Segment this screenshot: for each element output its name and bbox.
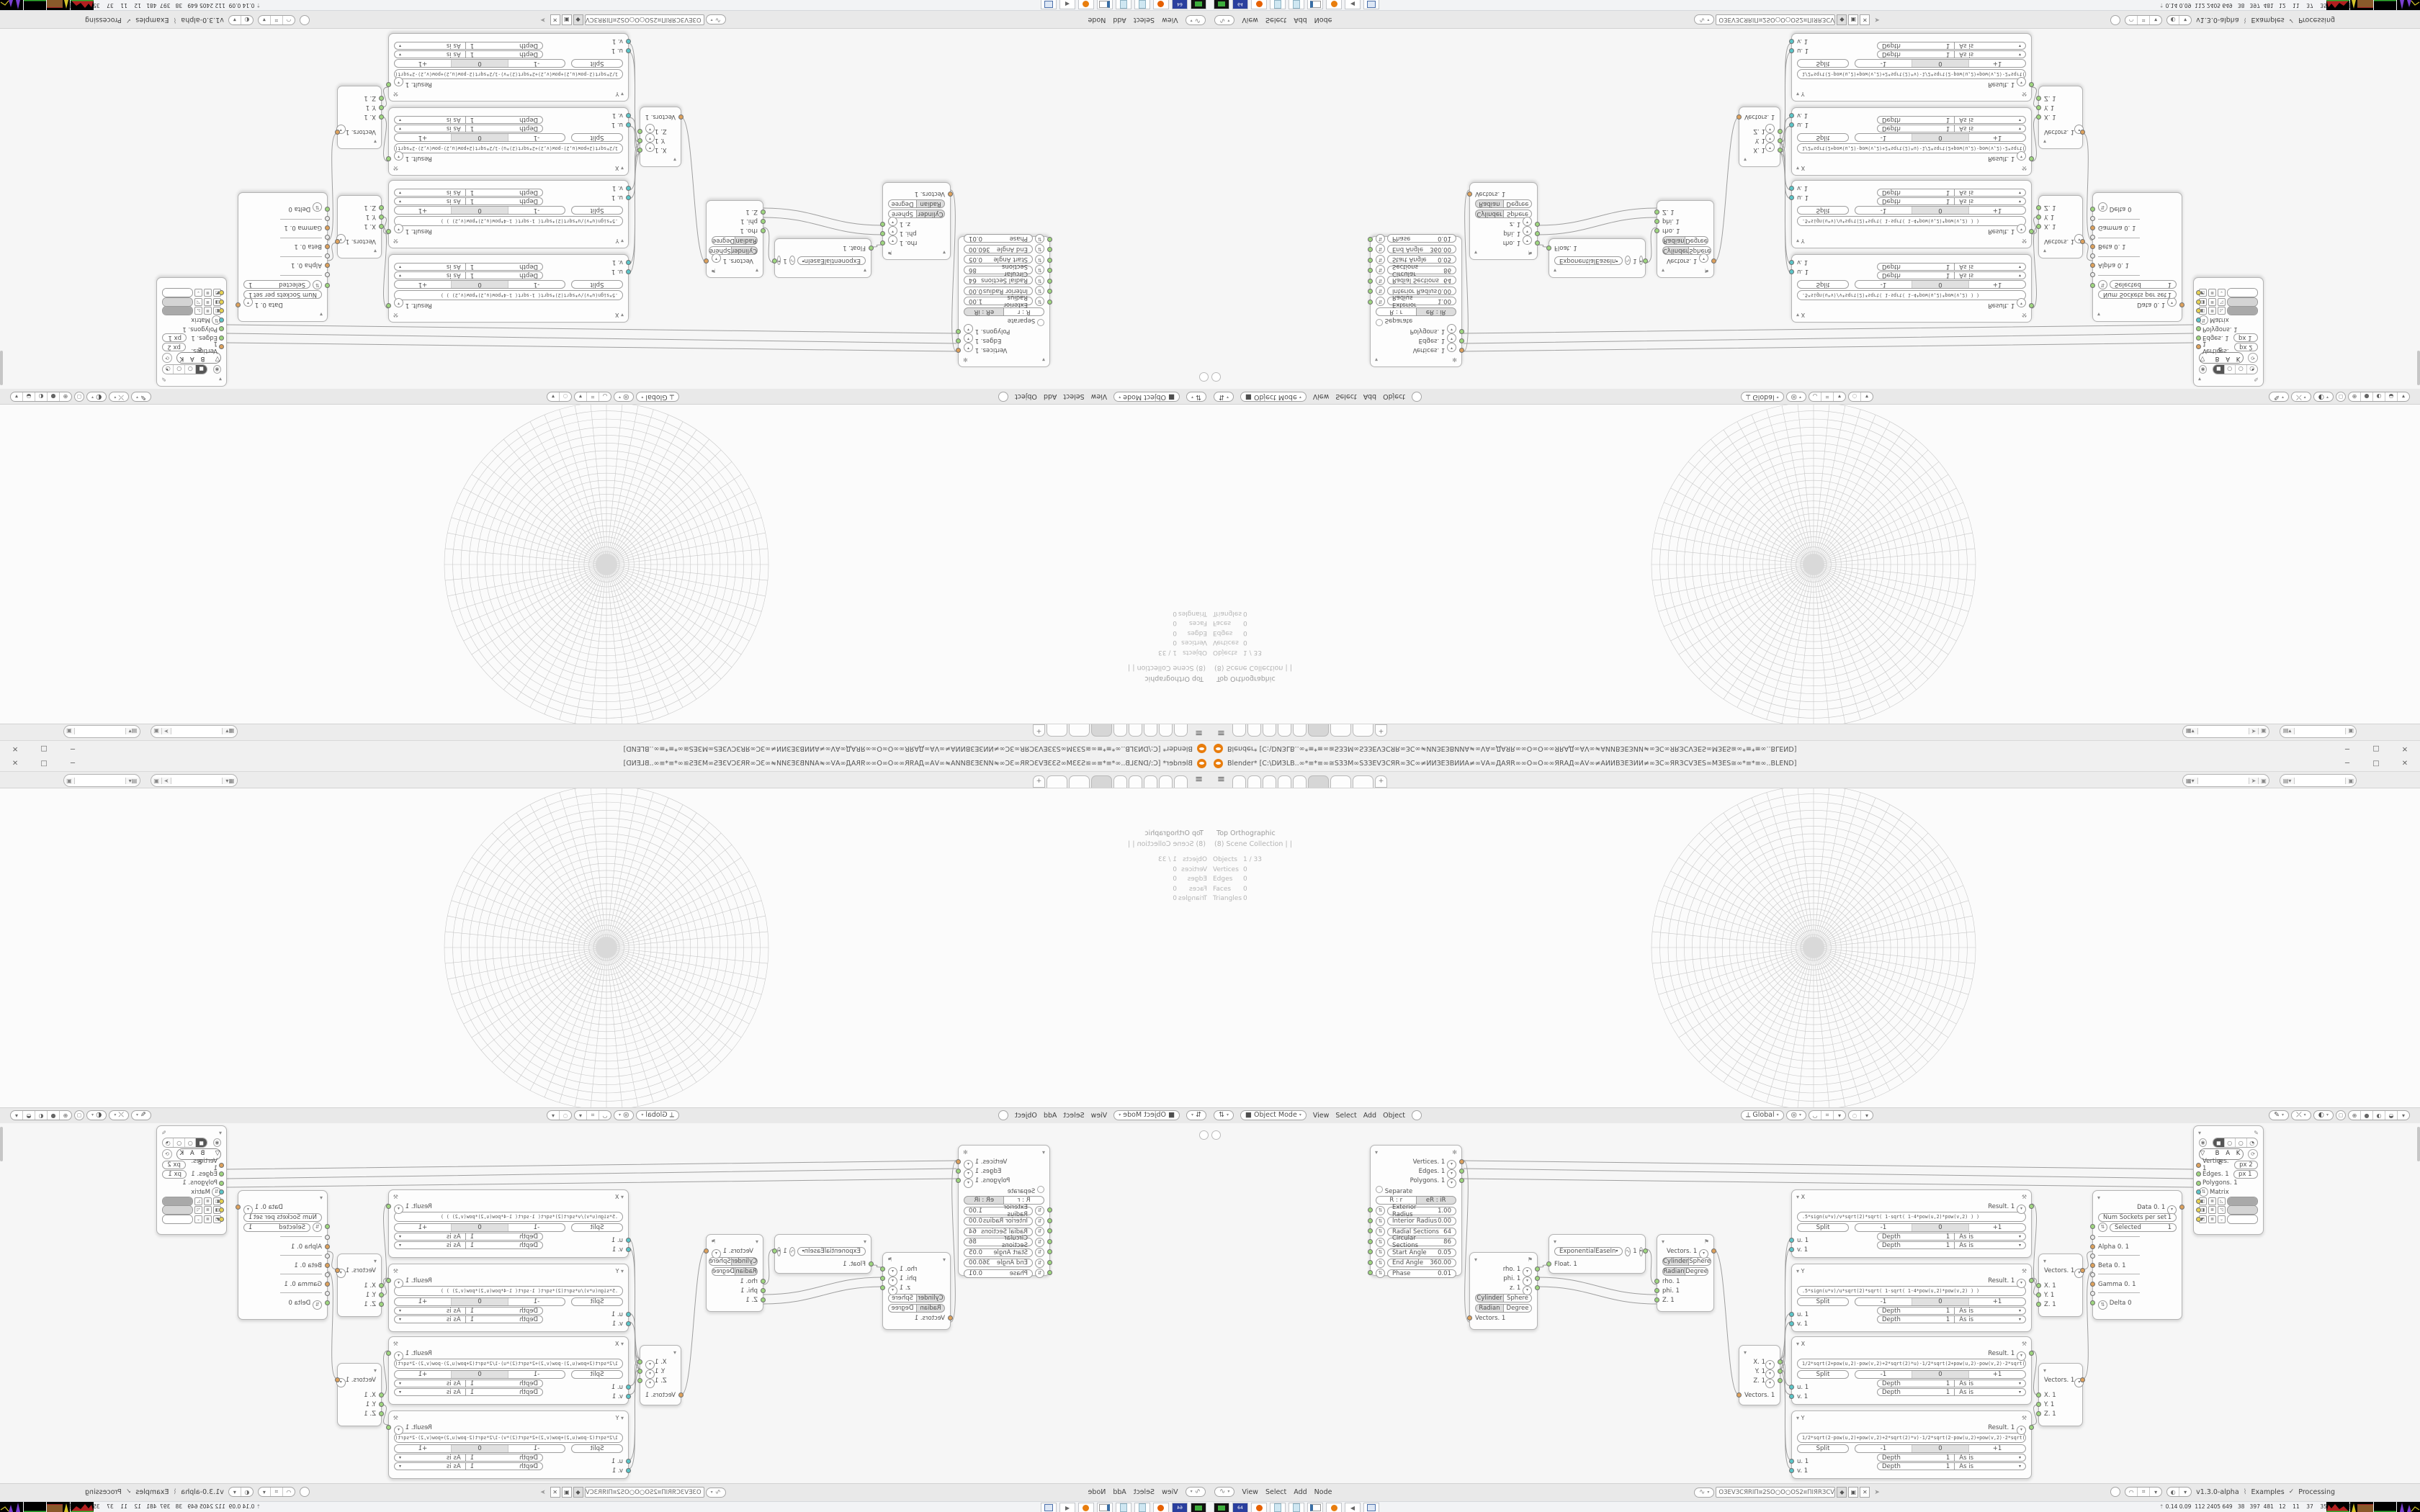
scene-selector[interactable]: ▦▾ ➤ ▣ — [2182, 725, 2269, 738]
add-workspace-button[interactable]: + — [1033, 775, 1045, 788]
menu-view[interactable]: View — [1162, 1488, 1178, 1496]
socket-vectors-out[interactable] — [335, 1268, 340, 1273]
socket-z-out[interactable] — [1778, 1378, 1783, 1383]
node-expression-x2[interactable]: ▾ X⚒ Result. 1 ▾ 1/2*sqrt(2+pow(u,2)-pow… — [1791, 1336, 2032, 1405]
node-polar-grid[interactable]: ▾✻ Vertices. 1 ▾ Edges. 1 ▾ Polygons. 1 … — [958, 236, 1050, 367]
socket-data-out[interactable] — [236, 302, 241, 307]
vertex-px-field[interactable]: px 2 — [162, 343, 186, 351]
param-field[interactable]: End Angle360.00 — [1387, 1259, 1456, 1267]
processing-toggle[interactable]: Processing — [2298, 17, 2335, 24]
tree-browse-button[interactable]: ∿▾ — [706, 1488, 726, 1498]
socket-z-out[interactable] — [880, 222, 885, 227]
socket-v-in[interactable] — [1789, 186, 1794, 191]
add-workspace-button[interactable]: + — [1375, 775, 1387, 788]
shading-mode-switch[interactable]: ⊕●◐◒▾ — [10, 1110, 72, 1120]
depth-row[interactable]: Depth1As is▾ — [394, 1388, 543, 1396]
param-field[interactable]: Interior Radius0.00 — [1387, 287, 1456, 295]
socket-vectors-out[interactable] — [2080, 239, 2085, 244]
menu-view[interactable]: View — [1091, 393, 1108, 401]
socket-y-out[interactable] — [1778, 1369, 1783, 1374]
overlay-toggle[interactable]: ▢ — [2336, 392, 2346, 402]
socket-data-out[interactable] — [2179, 302, 2184, 307]
list-icon[interactable]: ≣ — [204, 1206, 212, 1214]
depth-row[interactable]: Depth1As is▾ — [394, 189, 543, 197]
socket-vectors-in[interactable] — [678, 114, 684, 120]
socket-result-out[interactable] — [386, 229, 391, 234]
examples-menu[interactable]: Examples — [135, 1488, 169, 1496]
display-mode-switch[interactable]: ◼○○◔ — [162, 364, 207, 374]
node-vector-to-cylindrical[interactable]: ▾⚑ rho. 1 ▾ phi. 1 ▾ z. 1 ▾ CylinderSphe… — [1469, 1252, 1538, 1330]
window-app-icon[interactable] — [1041, 1503, 1057, 1512]
socket-float-in[interactable] — [1546, 1261, 1551, 1266]
vertex-color-swatch[interactable] — [2227, 307, 2258, 316]
window-app-icon[interactable] — [1363, 0, 1379, 9]
camera-icon[interactable]: ◉ — [2199, 365, 2207, 374]
depth-row[interactable]: Depth1As is▾ — [394, 1233, 543, 1241]
snap-circle-button[interactable] — [300, 1487, 310, 1497]
socket-z-in[interactable] — [379, 96, 384, 101]
offset-switch[interactable]: -10+1 — [1855, 1297, 2026, 1306]
node-expression-y1[interactable]: ▾ Y⚒ Result. 1 ▾ .5*sign(u*v)/u*sqrt(2)*… — [388, 1264, 629, 1332]
socket-vectors-out[interactable] — [2080, 1377, 2085, 1382]
scrollbar-thumb[interactable] — [0, 351, 3, 385]
notepad-icon[interactable] — [1116, 1503, 1131, 1512]
socket-gamma-in[interactable] — [325, 1282, 330, 1287]
socket-u-in[interactable] — [626, 122, 631, 127]
workspace-tab[interactable] — [1293, 775, 1307, 788]
socket-phi-out[interactable] — [1535, 1276, 1540, 1281]
coord-mode-toggle[interactable]: CylinderSphere — [1475, 210, 1532, 218]
overlap-toggle[interactable]: ◐▾ — [228, 15, 254, 25]
gizmo-dropdown[interactable]: ◐▾ — [86, 392, 107, 402]
node-data[interactable]: ▾ Data 0. 1 ▾ Num Sockets per set1 ⇅Sele… — [238, 192, 328, 322]
socket-z-in[interactable] — [1654, 210, 1659, 215]
minimize-button[interactable]: ─ — [2342, 744, 2352, 752]
list-icon[interactable]: ≣ — [204, 289, 212, 297]
proportional-edit-toggle[interactable]: ◌▾ — [547, 1110, 572, 1120]
node-tree-name-field[interactable]: ОЗЕVЗСЯRІП¤2SО○О○ОS2¤ПІЯRЗСVЗЕО — [1716, 1487, 1835, 1498]
expression-field[interactable]: 1/2*sqrt(2+pow(u,2)-pow(v,2)+2*sqrt(2)*u… — [1797, 143, 2026, 153]
blender-app-icon[interactable] — [1078, 0, 1094, 9]
split-button[interactable]: Split — [571, 1370, 623, 1379]
param-field[interactable]: Start Angle0.05 — [964, 256, 1033, 264]
socket-polygons-out[interactable] — [956, 329, 961, 334]
socket-beta-in[interactable] — [2090, 245, 2095, 250]
param-field[interactable]: Exterior Radius1.00 — [1387, 1207, 1456, 1215]
gizmo-dropdown[interactable]: ◐▾ — [2313, 392, 2334, 402]
editor-type-button[interactable]: ∿▾ — [1186, 15, 1206, 25]
speaker-icon[interactable]: ◀ — [1059, 1503, 1075, 1512]
shading-mode-switch[interactable]: ⊕●◐◒▾ — [10, 392, 72, 402]
socket-rho-in[interactable] — [1654, 1279, 1659, 1284]
offset-switch[interactable]: -10+1 — [1855, 207, 2026, 215]
socket-alpha-in[interactable] — [2090, 264, 2095, 269]
socket-z-in[interactable] — [2036, 96, 2041, 101]
viewlayer-selector[interactable]: ▤▾ ▣ — [63, 725, 140, 738]
scrollbar-thumb[interactable] — [2417, 1127, 2420, 1161]
vertex-color-swatch[interactable] — [162, 1197, 193, 1206]
pin-icon[interactable]: ➤ — [1874, 17, 1880, 24]
socket-edges-out[interactable] — [1459, 1169, 1464, 1174]
socket-polygons-in[interactable] — [219, 327, 224, 332]
copy-icon[interactable]: ▣ — [2345, 729, 2356, 735]
node-bake-output[interactable]: ▾✎ ◉ ◼○○◔ ▽ B A K E⟳ Vertices. 1px 2 Edg… — [156, 1125, 227, 1235]
menu-select[interactable]: Select — [1265, 1488, 1286, 1496]
menu-view[interactable]: View — [1313, 1112, 1330, 1120]
workspace-tab[interactable] — [1330, 775, 1351, 788]
angle-mode-toggle[interactable]: RadianDegree — [1662, 236, 1708, 245]
search-button[interactable] — [998, 392, 1008, 402]
socket-rho-out[interactable] — [1535, 1266, 1540, 1272]
coord-mode-toggle[interactable]: CylinderSphere — [1475, 1294, 1532, 1302]
list-icon[interactable]: ≣ — [2208, 298, 2216, 306]
editor-app-icon[interactable] — [1307, 1503, 1323, 1512]
node-split-xyz[interactable]: ▾ X. 1▾ Y. 1▾ Z. 1▾ Vectors. 1 — [1739, 1345, 1780, 1405]
socket-vertices-in[interactable] — [219, 1163, 224, 1168]
socket-z-in[interactable] — [761, 1297, 766, 1302]
expression-field[interactable]: 1/2*sqrt(2-pow(u,2)+pow(v,2)+2*sqrt(2)*v… — [394, 1433, 623, 1443]
socket-polygons-out[interactable] — [1459, 329, 1464, 334]
save64-app-icon[interactable]: 64 — [1172, 0, 1188, 9]
offset-switch[interactable]: -10+1 — [394, 1297, 565, 1306]
sorcar-node-editor[interactable]: ▾✻ Vertices. 1 ▾ Edges. 1 ▾ Polygons. 1 … — [0, 11, 1210, 389]
depth-row[interactable]: Depth1As is▾ — [394, 42, 543, 50]
socket-x-in[interactable] — [2036, 224, 2041, 229]
depth-row[interactable]: Depth1As is▾ — [1877, 263, 2026, 271]
socket-z-in[interactable] — [379, 205, 384, 210]
mode-dropdown[interactable]: ■Object Mode▾ — [1113, 1110, 1180, 1120]
expression-field[interactable]: .5*sign(u*v)/u*sqrt(2)*sqrt( 1-sqrt( 1-4… — [394, 216, 623, 226]
offset-switch[interactable]: -10+1 — [394, 1370, 565, 1379]
workspace-tab[interactable] — [1144, 724, 1157, 737]
socket-u-in[interactable] — [1789, 122, 1794, 127]
param-field[interactable]: Circular Sections86 — [1387, 1238, 1456, 1246]
node-data[interactable]: ▾ Data 0. 1 ▾ Num Sockets per set1 ⇅Sele… — [2092, 1190, 2182, 1320]
workspace-tab[interactable] — [1047, 775, 1067, 788]
param-field[interactable]: Phase0.01 — [964, 235, 1033, 243]
copy-icon[interactable]: ▣ — [64, 778, 75, 784]
socket-x-out[interactable] — [637, 148, 642, 153]
socket-result-out[interactable] — [2029, 1425, 2034, 1430]
edge-px-field[interactable]: px 1 — [162, 334, 187, 343]
node-tree-name-field[interactable]: ОЗЕVЗСЯRІП¤2SО○О○ОS2¤ПІЯRЗСVЗЕО — [585, 14, 704, 25]
viewlayer-name-field[interactable] — [75, 726, 125, 737]
sorcar-node-editor[interactable]: ▾✻ Vertices. 1 ▾ Edges. 1 ▾ Polygons. 1 … — [1210, 1123, 2420, 1501]
depth-row[interactable]: Depth1As is▾ — [1877, 50, 2026, 58]
socket-matrix-in[interactable] — [219, 318, 224, 323]
camera-icon[interactable]: ◉ — [213, 365, 221, 374]
list-icon[interactable]: ≣ — [204, 307, 212, 315]
socket-u-in[interactable] — [626, 48, 631, 53]
unlink-icon[interactable]: ✕ — [550, 1487, 560, 1498]
socket-result-out[interactable] — [2029, 156, 2034, 161]
ramp-icon[interactable]: ◹ — [194, 298, 202, 306]
socket-eased-out[interactable] — [772, 1248, 777, 1254]
node-expression-y1[interactable]: ▾ Y⚒ Result. 1 ▾ .5*sign(u*v)/u*sqrt(2)*… — [1791, 180, 2032, 248]
socket-alpha-in[interactable] — [325, 1244, 330, 1249]
socket-z-out[interactable] — [1535, 222, 1540, 227]
scene-name-field[interactable] — [2198, 726, 2249, 737]
display-mode-switch[interactable]: ◼○○◔ — [162, 1138, 207, 1148]
angle-mode-toggle[interactable]: RadianDegree — [712, 236, 758, 245]
snap-toggle[interactable]: ◠⌗▾ — [2125, 15, 2162, 25]
split-button[interactable]: Split — [571, 1297, 623, 1306]
workspace-tab[interactable] — [1278, 724, 1291, 737]
examples-menu[interactable]: Examples — [2251, 1488, 2285, 1496]
param-field[interactable]: End Angle360.00 — [1387, 245, 1456, 253]
coord-mode-toggle[interactable]: CylinderSphere — [888, 210, 945, 218]
socket-vertices-out[interactable] — [956, 1159, 961, 1164]
snap-circle-button[interactable] — [2110, 1487, 2120, 1497]
scrollbar-thumb[interactable] — [2417, 351, 2420, 385]
scrollbar-thumb[interactable] — [0, 1127, 3, 1161]
offset-switch[interactable]: -10+1 — [394, 207, 565, 215]
socket-z-out[interactable] — [880, 1285, 885, 1290]
scene-selector[interactable]: ▦▾ ➤ ▣ — [2182, 774, 2269, 787]
node-cylindrical-to-vector[interactable]: ▾⚑ Vectors. 1 ▾ CylinderSphere RadianDeg… — [1657, 200, 1714, 278]
menu-object[interactable]: Object — [1015, 393, 1037, 401]
viewlayer-selector[interactable]: ▤▾ ▣ — [2280, 774, 2357, 787]
copy-icon[interactable]: ▣ — [562, 1487, 572, 1498]
param-field[interactable]: Exterior Radius1.00 — [964, 1207, 1033, 1215]
socket-result-out[interactable] — [2029, 82, 2034, 87]
split-button[interactable]: Split — [571, 134, 623, 143]
list-icon[interactable]: ≣ — [2208, 307, 2216, 315]
edge-color-swatch[interactable] — [162, 297, 193, 307]
socket-z-out[interactable] — [1535, 1285, 1540, 1290]
offset-switch[interactable]: -10+1 — [394, 60, 565, 68]
selected-field[interactable]: Selected1 — [243, 1223, 310, 1232]
expression-field[interactable]: 1/2*sqrt(2-pow(u,2)+pow(v,2)+2*sqrt(2)*v… — [1797, 69, 2026, 79]
ramp-icon[interactable]: ⌄ — [2218, 289, 2226, 297]
socket-result-out[interactable] — [2029, 1204, 2034, 1209]
socket-vectors-out[interactable] — [704, 258, 709, 264]
expression-field[interactable]: .5*sign(u*v)/v*sqrt(2)*sqrt( 1-sqrt( 1-4… — [1797, 1212, 2026, 1222]
separate-checkbox[interactable] — [1376, 1186, 1383, 1193]
node-combine-xyz-1[interactable]: ▾ Vectors. 1▾ X. 1 Y. 1 Z. 1 — [337, 195, 382, 258]
menu-view[interactable]: View — [1162, 17, 1178, 24]
workspace-tab[interactable] — [1263, 775, 1276, 788]
node-easing[interactable]: ▾ ExponentialEaseIn▾ ∿ 1 ▾ Float. 1 — [1549, 238, 1646, 278]
node-expression-y1[interactable]: ▾ Y⚒ Result. 1 ▾ .5*sign(u*v)/u*sqrt(2)*… — [388, 180, 629, 248]
socket-u-in[interactable] — [1789, 1459, 1794, 1464]
param-field[interactable]: Start Angle0.05 — [1387, 256, 1456, 264]
socket-z-in[interactable] — [2036, 1411, 2041, 1416]
socket-z-out[interactable] — [1778, 129, 1783, 134]
depth-row[interactable]: Depth1As is▾ — [1877, 42, 2026, 50]
hamburger-menu-icon[interactable]: ≡ — [1195, 774, 1203, 785]
edge-px-field[interactable]: px 1 — [2233, 1170, 2258, 1179]
socket-delta-in[interactable] — [2090, 1300, 2095, 1305]
socket-phi-out[interactable] — [880, 231, 885, 236]
pivot-dropdown[interactable]: ◎▾ — [1786, 392, 1806, 402]
param-field[interactable]: Exterior Radius1.00 — [1387, 297, 1456, 306]
socket-x-in[interactable] — [379, 114, 384, 120]
close-button[interactable]: ✕ — [10, 744, 20, 752]
socket-u-in[interactable] — [626, 269, 631, 274]
socket-v-in[interactable] — [1789, 1468, 1794, 1473]
offset-switch[interactable]: -10+1 — [1855, 134, 2026, 143]
expression-field[interactable]: 1/2*sqrt(2-pow(u,2)+pow(v,2)+2*sqrt(2)*v… — [1797, 1433, 2026, 1443]
param-field[interactable]: End Angle360.00 — [964, 1259, 1033, 1267]
display-mode-switch[interactable]: ◼○○◔ — [2213, 1138, 2258, 1148]
workspace-tab[interactable] — [1069, 775, 1090, 788]
overlap-toggle[interactable]: ◐▾ — [2166, 15, 2192, 25]
workspace-tab[interactable] — [1263, 724, 1276, 737]
num-sockets-field[interactable]: Num Sockets per set1 — [2098, 1213, 2177, 1222]
depth-row[interactable]: Depth1As is▾ — [394, 1462, 543, 1470]
firefox-icon[interactable] — [1153, 0, 1169, 9]
socket-y-in[interactable] — [2036, 1292, 2041, 1297]
param-field[interactable]: End Angle360.00 — [964, 245, 1033, 253]
coord-mode-toggle[interactable]: CylinderSphere — [712, 1257, 758, 1266]
socket-gamma-in[interactable] — [2090, 1282, 2095, 1287]
offset-switch[interactable]: -10+1 — [394, 281, 565, 289]
offset-switch[interactable]: -10+1 — [394, 134, 565, 143]
socket-rho-out[interactable] — [1535, 240, 1540, 246]
workspace-tab-active[interactable] — [1308, 775, 1329, 788]
examples-menu[interactable]: Examples — [2251, 17, 2285, 24]
editor-app-icon[interactable] — [1097, 0, 1113, 9]
socket-vectors-in[interactable] — [1736, 1392, 1742, 1398]
depth-row[interactable]: Depth1As is▾ — [394, 1380, 543, 1387]
param-field[interactable]: Circular Sections86 — [1387, 266, 1456, 274]
notepad-icon[interactable] — [1116, 0, 1131, 9]
xray-dropdown[interactable]: ⤫▾ — [109, 1110, 129, 1120]
param-field[interactable]: Radial Sections64 — [964, 276, 1033, 285]
node-expression-y2[interactable]: ▾ Y⚒ Result. 1 ▾ 1/2*sqrt(2-pow(u,2)+pow… — [1791, 33, 2032, 102]
workspace-tab[interactable] — [1232, 775, 1246, 788]
pin-icon[interactable]: ➤ — [162, 729, 172, 735]
depth-row[interactable]: Depth1As is▾ — [394, 197, 543, 205]
workspace-tab[interactable] — [1113, 724, 1127, 737]
editor-type-button[interactable]: ⇅▾ — [1214, 392, 1234, 402]
depth-row[interactable]: Depth1As is▾ — [394, 116, 543, 124]
copy-icon[interactable]: ▣ — [2258, 729, 2269, 735]
list-icon[interactable]: ≣ — [204, 1215, 212, 1223]
socket-eased-out[interactable] — [1643, 258, 1648, 264]
annotate-dropdown[interactable]: ✎▾ — [131, 1110, 151, 1120]
processing-toggle[interactable]: Processing — [85, 17, 122, 24]
workspace-tab[interactable] — [1278, 775, 1291, 788]
overlap-toggle[interactable]: ◐▾ — [2166, 1487, 2192, 1497]
param-field[interactable]: Circular Sections86 — [964, 1238, 1033, 1246]
blender-app-icon[interactable] — [1078, 1503, 1094, 1512]
processing-toggle[interactable]: Processing — [2298, 1488, 2335, 1496]
gear-icon[interactable]: ✻ — [963, 1149, 968, 1156]
ramp-icon[interactable]: ◹ — [2218, 1206, 2226, 1214]
gizmo-dropdown[interactable]: ◐▾ — [86, 1110, 107, 1120]
orientation-dropdown[interactable]: ⟂Global▾ — [1741, 392, 1784, 402]
gear-icon[interactable]: ✻ — [963, 357, 968, 364]
refresh-icon[interactable]: ⟳ — [2248, 1149, 2258, 1159]
socket-vectors-out[interactable] — [2080, 1268, 2085, 1273]
socket-phi-in[interactable] — [1654, 219, 1659, 224]
param-field[interactable]: Interior Radius0.00 — [964, 1217, 1033, 1225]
snap-toggle[interactable]: ◠⌗▾ — [258, 1487, 295, 1497]
node-polar-grid[interactable]: ▾✻ Vertices. 1 ▾ Edges. 1 ▾ Polygons. 1 … — [1370, 1145, 1462, 1276]
add-workspace-button[interactable]: + — [1033, 724, 1045, 737]
socket-vectors-out[interactable] — [1711, 1248, 1716, 1254]
socket-float-in[interactable] — [869, 246, 874, 251]
socket-polygons-out[interactable] — [1459, 1178, 1464, 1183]
socket-z-in[interactable] — [2036, 1302, 2041, 1307]
socket-vectors-out[interactable] — [335, 239, 340, 244]
viewlayer-selector[interactable]: ▤▾ ▣ — [63, 774, 140, 787]
node-expression-y1[interactable]: ▾ Y⚒ Result. 1 ▾ .5*sign(u*v)/u*sqrt(2)*… — [1791, 1264, 2032, 1332]
depth-row[interactable]: Depth1As is▾ — [394, 125, 543, 132]
overlap-toggle[interactable]: ◐▾ — [228, 1487, 254, 1497]
viewport-3d[interactable]: Top Orthographic (8) Scene Collection | … — [1210, 788, 2420, 1123]
socket-result-out[interactable] — [2029, 1278, 2034, 1283]
maximize-button[interactable]: □ — [39, 760, 49, 768]
split-button[interactable]: Split — [571, 207, 623, 215]
depth-row[interactable]: Depth1As is▾ — [1877, 189, 2026, 197]
menu-add[interactable]: Add — [1044, 393, 1057, 401]
xray-dropdown[interactable]: ⤫▾ — [109, 392, 129, 402]
list-icon[interactable]: ≣ — [2208, 1206, 2216, 1214]
socket-polygons-out[interactable] — [956, 1178, 961, 1183]
menu-add[interactable]: Add — [1044, 1112, 1057, 1120]
depth-row[interactable]: Depth1As is▾ — [394, 1307, 543, 1315]
menu-view[interactable]: View — [1242, 1488, 1258, 1496]
depth-row[interactable]: Depth1As is▾ — [1877, 116, 2026, 124]
edge-px-field[interactable]: px 1 — [162, 1170, 187, 1179]
face-color-swatch[interactable] — [162, 289, 193, 298]
separate-checkbox[interactable] — [1037, 1186, 1044, 1193]
easing-preset-dropdown[interactable]: ExponentialEaseIn▾ — [797, 1247, 866, 1256]
sorcar-node-editor[interactable]: ▾✻ Vertices. 1 ▾ Edges. 1 ▾ Polygons. 1 … — [0, 1123, 1210, 1501]
param-field[interactable]: Start Angle0.05 — [964, 1248, 1033, 1257]
node-easing[interactable]: ▾ ExponentialEaseIn▾ ∿ 1 ▾ Float. 1 — [774, 1234, 871, 1274]
socket-y-in[interactable] — [2036, 105, 2041, 110]
snap-toggle[interactable]: ◡⌗▾ — [1809, 1110, 1846, 1120]
unlink-icon[interactable]: ✕ — [1860, 1487, 1870, 1498]
pin-icon[interactable]: ➤ — [2249, 778, 2259, 784]
xray-dropdown[interactable]: ⤫▾ — [2291, 392, 2311, 402]
snap-toggle[interactable]: ◡⌗▾ — [1809, 392, 1846, 402]
ramp-icon[interactable]: ◺ — [194, 307, 202, 315]
easing-preset-dropdown[interactable]: ExponentialEaseIn▾ — [797, 256, 866, 265]
num-sockets-field[interactable]: Num Sockets per set1 — [2098, 291, 2177, 300]
list-icon[interactable]: ≣ — [2208, 289, 2216, 297]
menu-select[interactable]: Select — [1063, 393, 1084, 401]
node-combine-xyz-2[interactable]: ▾ Vectors. 1▾ X. 1 Y. 1 Z. 1 — [2038, 86, 2083, 149]
expression-field[interactable]: .5*sign(u*v)/u*sqrt(2)*sqrt( 1-sqrt( 1-4… — [394, 1286, 623, 1296]
socket-data-out[interactable] — [2179, 1205, 2184, 1210]
terminal-app-icon[interactable] — [1214, 0, 1229, 9]
socket-rho-in[interactable] — [1654, 228, 1659, 233]
notepad-icon[interactable] — [1289, 1503, 1304, 1512]
snap-circle-button[interactable] — [300, 15, 310, 25]
socket-v-in[interactable] — [626, 186, 631, 191]
menu-view[interactable]: View — [1091, 1112, 1108, 1120]
node-cylindrical-to-vector[interactable]: ▾⚑ Vectors. 1 ▾ CylinderSphere RadianDeg… — [706, 200, 763, 278]
socket-z-out[interactable] — [637, 129, 642, 134]
offset-switch[interactable]: -10+1 — [1855, 1223, 2026, 1232]
expression-field[interactable]: .5*sign(u*v)/v*sqrt(2)*sqrt( 1-sqrt( 1-4… — [394, 1212, 623, 1222]
menu-object[interactable]: Object — [1383, 393, 1405, 401]
radius-mode-toggle[interactable]: R : reR : iR — [964, 307, 1044, 316]
socket-vectors-in[interactable] — [1736, 114, 1742, 120]
angle-mode-toggle[interactable]: RadianDegree — [1475, 199, 1532, 208]
node-easing[interactable]: ▾ ExponentialEaseIn▾ ∿ 1 ▾ Float. 1 — [774, 238, 871, 278]
minimize-button[interactable]: ─ — [2342, 760, 2352, 768]
viewlayer-name-field[interactable] — [2295, 726, 2345, 737]
terminal-app-icon[interactable] — [1191, 1503, 1206, 1512]
menu-add[interactable]: Add — [1294, 1488, 1307, 1496]
node-data[interactable]: ▾ Data 0. 1 ▾ Num Sockets per set1 ⇅Sele… — [2092, 192, 2182, 322]
